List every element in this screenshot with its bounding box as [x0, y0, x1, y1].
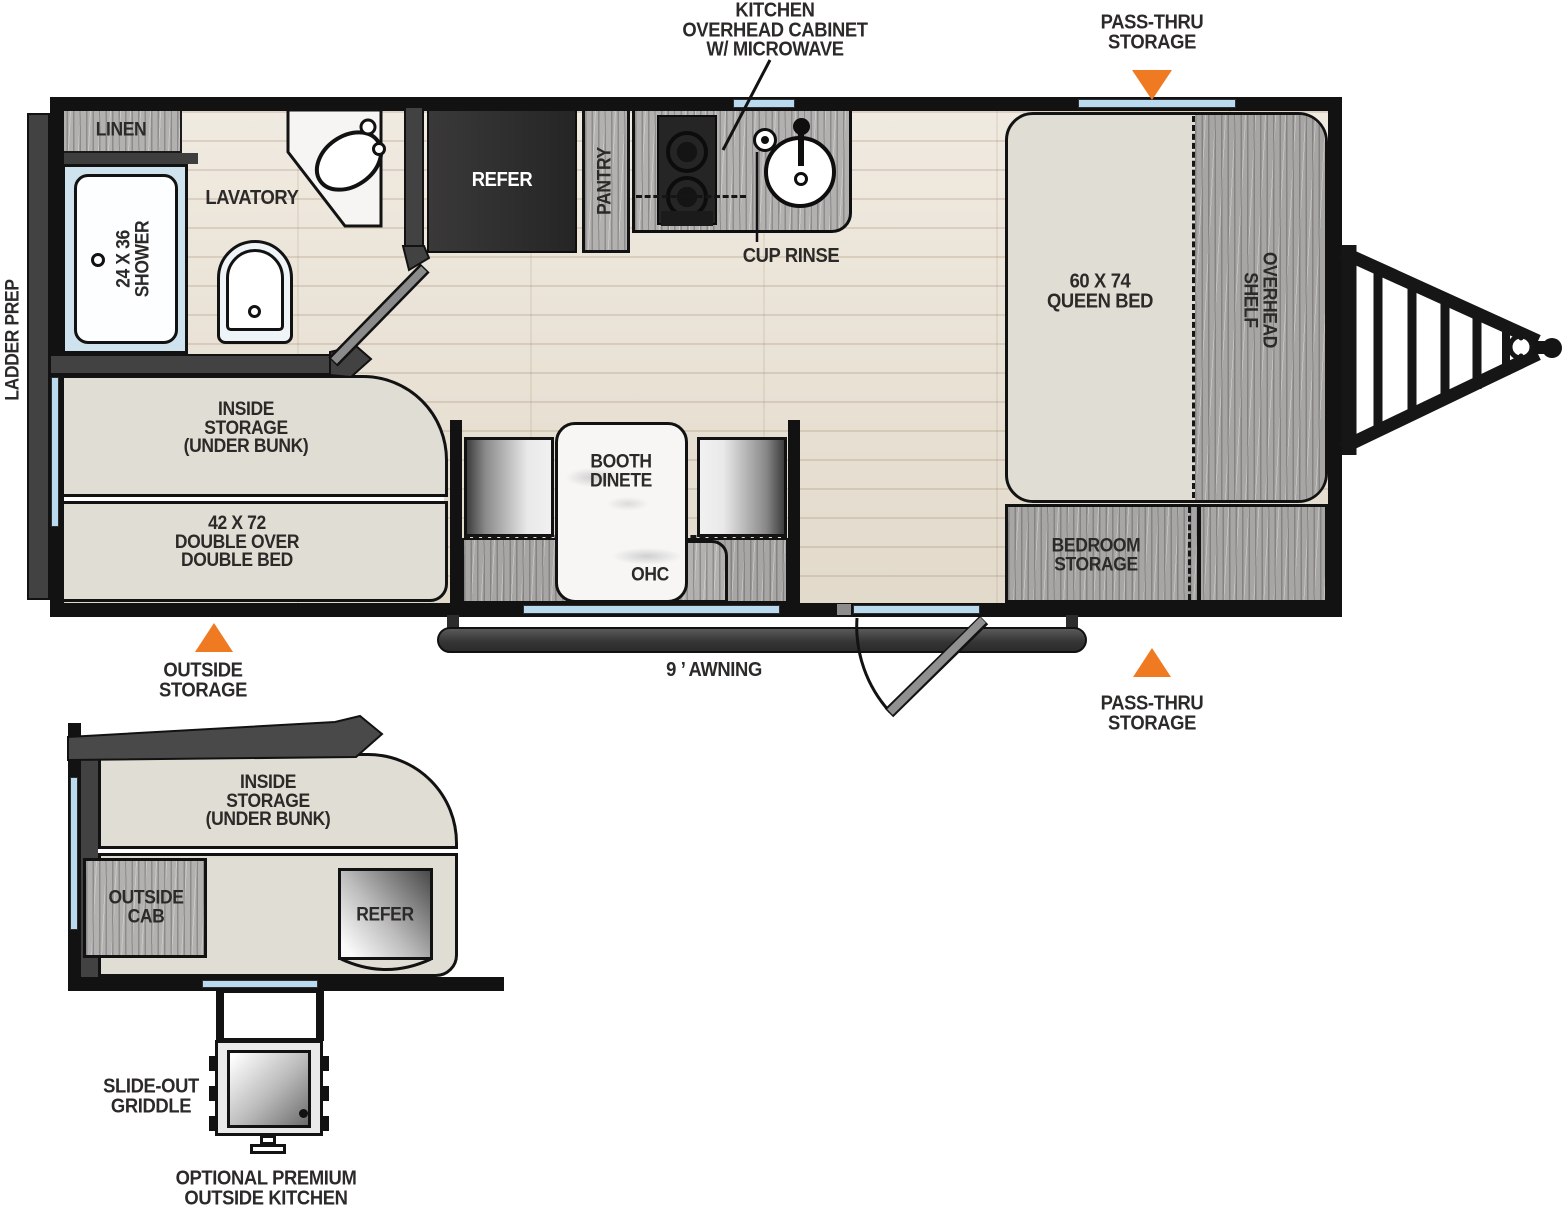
detail-refer-curve [341, 959, 431, 970]
slide-out-griddle-label: SLIDE-OUT GRIDDLE [103, 1077, 199, 1116]
shower-label: 24 X 36 SHOWER [115, 221, 152, 297]
refer-wall-stub [405, 107, 423, 249]
bedroom-storage-label: BEDROOM STORAGE [1052, 537, 1141, 574]
pantry-label: PANTRY [597, 147, 616, 215]
cup-rinse-label: CUP RINSE [743, 247, 840, 267]
entry-door-arc [857, 618, 890, 712]
tongue-jack-pin-bottom [1519, 354, 1524, 359]
lavatory-faucet-dot2 [374, 144, 385, 155]
refer-wall-stub-tip [403, 246, 429, 270]
bathroom-door-leaf [334, 269, 424, 361]
pass-thru-top-label: PASS-THRU STORAGE [1101, 13, 1204, 52]
ohc-label: OHC [631, 567, 669, 586]
refer-label: REFER [472, 171, 533, 191]
pass-thru-bottom-label: PASS-THRU STORAGE [1101, 694, 1204, 733]
detail-bunk-band [68, 716, 382, 760]
hitch-ball [1542, 338, 1562, 358]
outside-cab-label: OUTSIDE CAB [108, 889, 183, 926]
tongue-jack-pin-top [1519, 336, 1524, 341]
detail-inside-storage-label: INSIDE STORAGE (UNDER BUNK) [206, 774, 331, 830]
awning-label: 9 ’ AWNING [666, 661, 762, 681]
ladder-prep-label: LADDER PREP [5, 279, 24, 400]
outside-kitchen-caption: OPTIONAL PREMIUM OUTSIDE KITCHEN [176, 1169, 357, 1208]
floorplan-canvas: LADDER PREP KITCHEN OVERHEAD CABINET W/ … [0, 0, 1568, 1210]
double-bed-label: 42 X 72 DOUBLE OVER DOUBLE BED [175, 515, 299, 571]
detail-refer-label: REFER [356, 907, 413, 926]
inside-storage-label: INSIDE STORAGE (UNDER BUNK) [184, 401, 309, 457]
overlay-lines [0, 0, 1568, 1210]
entry-door-leaf [890, 620, 983, 712]
lavatory-label: LAVATORY [205, 189, 298, 209]
kitchen-overhead-callout-label: KITCHEN OVERHEAD CABINET W/ MICROWAVE [682, 2, 867, 61]
bathroom-wall [50, 355, 332, 374]
overhead-shelf-label: OVERHEAD SHELF [1240, 252, 1277, 348]
linen-label: LINEN [96, 122, 147, 141]
lavatory-faucet-dot1 [361, 120, 375, 134]
booth-dinette-label: BOOTH DINETE [590, 453, 652, 490]
outside-storage-label: OUTSIDE STORAGE [159, 661, 247, 700]
queen-bed-label: 60 X 74 QUEEN BED [1047, 272, 1153, 311]
kitchen-callout-leader [723, 60, 770, 150]
